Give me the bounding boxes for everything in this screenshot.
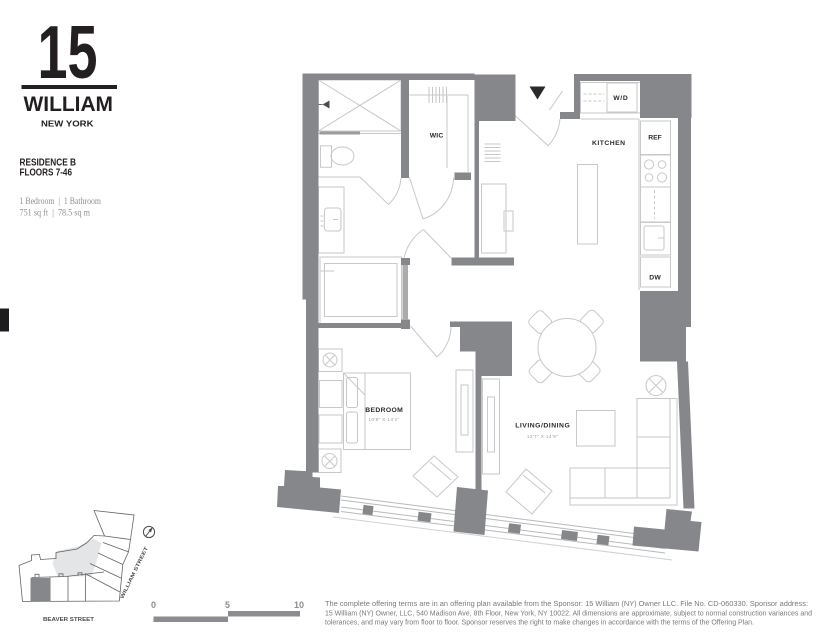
- svg-text:REF: REF: [648, 135, 662, 142]
- svg-text:LIVING/DINING: LIVING/DINING: [515, 423, 570, 430]
- svg-text:751 sq ft | 78.5 sq m: 751 sq ft | 78.5 sq m: [20, 208, 91, 219]
- svg-text:W/D: W/D: [613, 95, 628, 102]
- svg-text:15: 15: [38, 10, 98, 94]
- svg-text:12'7" X 14'9": 12'7" X 14'9": [527, 434, 558, 439]
- svg-text:5: 5: [225, 600, 230, 610]
- svg-text:WILLIAM STREET: WILLIAM STREET: [119, 546, 149, 600]
- svg-text:WIC: WIC: [430, 133, 444, 140]
- svg-text:10: 10: [294, 600, 304, 610]
- svg-text:tolerances, and may vary from: tolerances, and may vary from floor to f…: [325, 620, 754, 627]
- svg-text:FLOORS 7-46: FLOORS 7-46: [20, 167, 73, 179]
- svg-text:BEAVER STREET: BEAVER STREET: [43, 617, 94, 623]
- svg-text:KITCHEN: KITCHEN: [592, 140, 625, 147]
- svg-text:10'8" X 14'1": 10'8" X 14'1": [368, 417, 399, 422]
- svg-text:BEDROOM: BEDROOM: [365, 407, 403, 414]
- svg-text:NEW YORK: NEW YORK: [41, 119, 94, 129]
- svg-text:15 William (NY) Owner, LLC, 54: 15 William (NY) Owner, LLC, 540 Madison …: [325, 610, 812, 617]
- svg-text:1 Bedroom | 1 Bathroom: 1 Bedroom | 1 Bathroom: [20, 197, 102, 207]
- svg-text:The complete offering terms ar: The complete offering terms are in an of…: [325, 601, 808, 608]
- svg-text:DW: DW: [649, 275, 661, 282]
- svg-text:WILLIAM: WILLIAM: [24, 92, 114, 116]
- svg-text:0: 0: [151, 600, 156, 610]
